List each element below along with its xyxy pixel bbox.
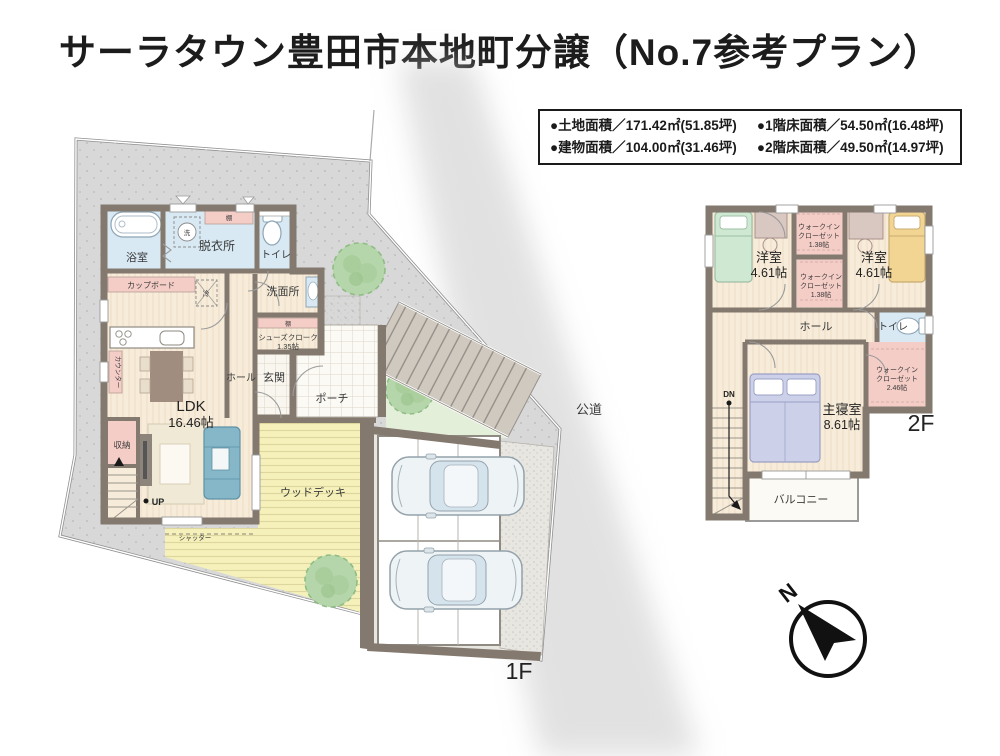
- cupboard-label: カップボード: [127, 281, 175, 290]
- north-arrow-icon: N: [774, 578, 865, 676]
- wic-2: [797, 257, 845, 307]
- floorplan-page: サーラタウン豊田市本地町分譲（No.7参考プラン） ●土地面積／171.42㎡(…: [0, 0, 1000, 756]
- counter-label: カウンター: [114, 356, 123, 389]
- stairs-1f: [106, 466, 138, 521]
- dn-label: DN: [723, 390, 735, 399]
- dressing-label: 脱衣所: [199, 238, 235, 253]
- road-label: 公道: [576, 402, 602, 417]
- dining-table: [150, 351, 183, 402]
- porch-label: ポーチ: [316, 392, 349, 405]
- wic3-label: ウォークイン: [876, 366, 918, 374]
- wic1-label2: クローゼット: [798, 231, 840, 240]
- floorplan-2f: バルコニー: [705, 205, 934, 521]
- ldk-size: 16.46帖: [168, 415, 214, 430]
- room-right-size: 4.61帖: [856, 265, 893, 280]
- hall-1f-label: ホール: [226, 372, 256, 384]
- wic2-size: 1.38帖: [811, 290, 832, 299]
- master-size: 8.61帖: [824, 417, 861, 432]
- floor1-tag: 1F: [506, 658, 533, 684]
- tree-icon: [305, 555, 357, 607]
- wood-deck-label: ウッドデッキ: [280, 485, 346, 499]
- up-label: UP: [152, 497, 165, 507]
- shoes-closet-label: シューズクローク: [258, 332, 318, 342]
- tree-icon: [333, 243, 385, 295]
- car-icon: [390, 548, 522, 612]
- wic2-label: ウォークイン: [800, 273, 842, 281]
- fridge-label: 冷: [203, 289, 210, 298]
- wic1-size: 1.38帖: [809, 240, 830, 249]
- desk-right: [849, 212, 883, 239]
- toilet-2f-label: トイレ: [878, 322, 908, 333]
- north-label: N: [774, 578, 802, 607]
- master-label: 主寝室: [822, 402, 861, 417]
- wic2-label2: クローゼット: [800, 281, 842, 290]
- wic1-label: ウォークイン: [798, 223, 840, 231]
- shelf-label: 棚: [285, 320, 291, 328]
- parking: [345, 423, 554, 661]
- car-icon: [392, 454, 524, 518]
- floor-plan-drawing: シャッター ウッドデッキ ポーチ 棚: [0, 0, 1000, 756]
- floor2-tag: 2F: [908, 410, 935, 436]
- washroom-label: 洗面所: [267, 285, 300, 298]
- room-left-size: 4.61帖: [751, 265, 788, 280]
- room-right-label: 洋室: [861, 250, 887, 265]
- bath-label: 浴室: [126, 250, 148, 264]
- storage-label: 収納: [113, 440, 130, 450]
- entrance-label: 玄関: [263, 370, 285, 384]
- washer-label: 洗: [184, 228, 191, 237]
- wic3-size: 2.46帖: [887, 383, 908, 392]
- wic3-label2: クローゼット: [876, 374, 918, 383]
- toilet-1f-label: トイレ: [261, 250, 291, 261]
- shelf-label: 棚: [226, 213, 233, 222]
- room-left-label: 洋室: [756, 250, 782, 265]
- shutter-label: シャッター: [179, 533, 212, 542]
- shoes-closet-size: 1.35帖: [277, 341, 300, 351]
- ldk-label: LDK: [176, 398, 205, 415]
- balcony-label: バルコニー: [774, 493, 829, 506]
- hall-2f-label: ホール: [800, 320, 833, 333]
